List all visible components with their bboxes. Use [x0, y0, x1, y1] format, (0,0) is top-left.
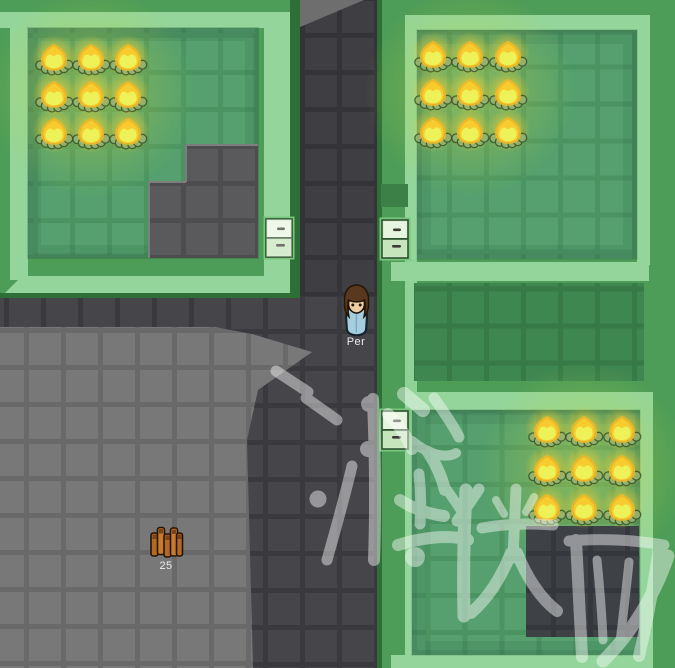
- svg-text:25: 25: [159, 560, 172, 572]
- svg-text:Per: Per: [347, 336, 366, 348]
